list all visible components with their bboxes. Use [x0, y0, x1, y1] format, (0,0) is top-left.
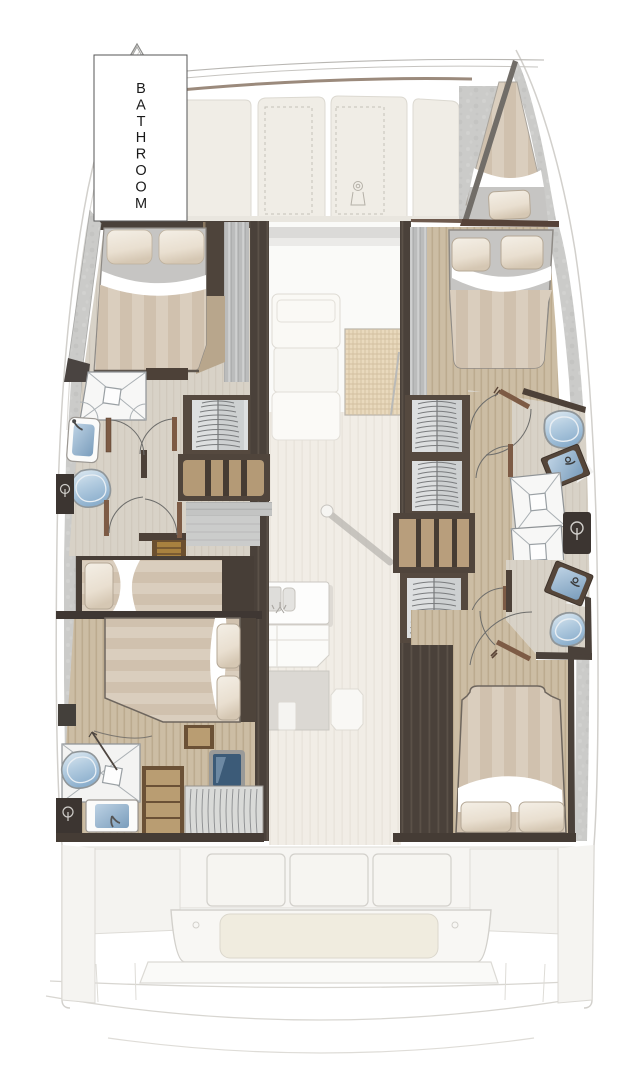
svg-text:T: T: [137, 114, 146, 130]
svg-text:M: M: [135, 196, 147, 212]
svg-text:O: O: [135, 163, 146, 179]
svg-text:B: B: [136, 81, 146, 97]
svg-text:H: H: [136, 130, 146, 146]
svg-text:R: R: [136, 147, 146, 163]
svg-text:A: A: [136, 97, 146, 113]
svg-text:O: O: [135, 179, 146, 195]
